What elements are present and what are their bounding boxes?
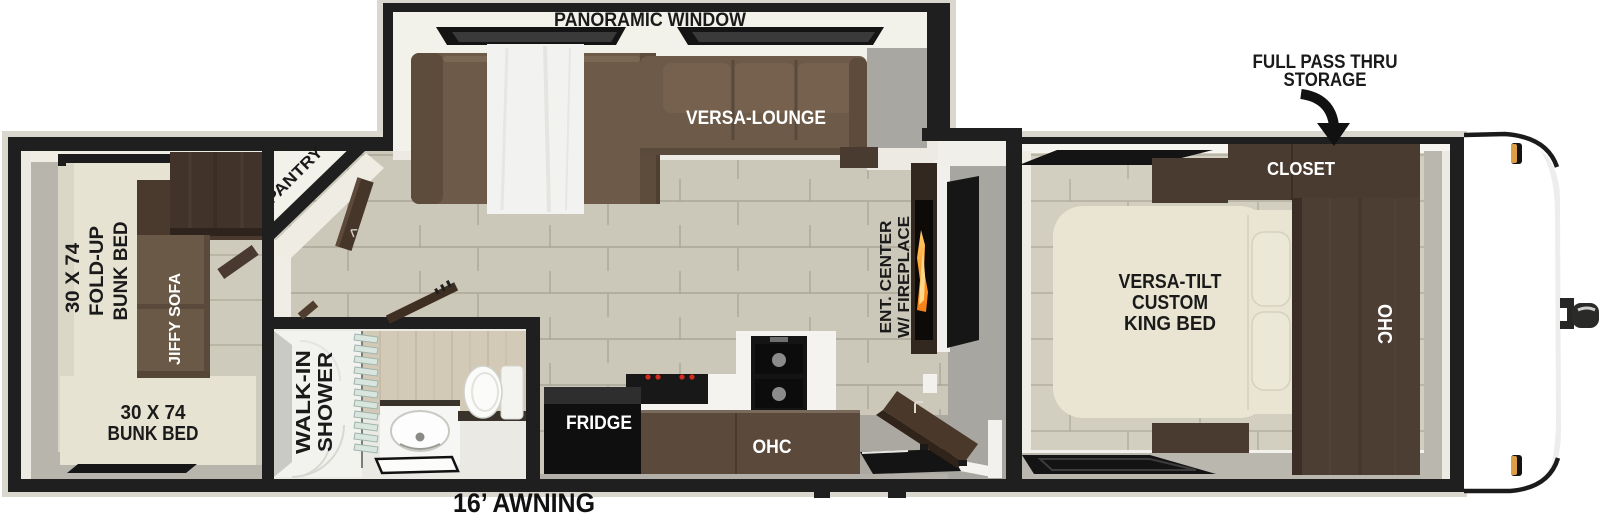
svg-text:W/ FIREPLACE: W/ FIREPLACE [896, 216, 913, 338]
svg-text:WALK-IN: WALK-IN [293, 350, 315, 454]
svg-text:ENT. CENTER: ENT. CENTER [878, 220, 895, 333]
svg-text:STORAGE: STORAGE [1284, 70, 1367, 91]
svg-text:VERSA-LOUNGE: VERSA-LOUNGE [686, 108, 826, 129]
svg-text:BUNK BED: BUNK BED [111, 222, 132, 321]
svg-text:16’ AWNING: 16’ AWNING [453, 488, 595, 515]
svg-text:OHC: OHC [1373, 304, 1395, 344]
svg-text:VERSA-TILT: VERSA-TILT [1119, 271, 1222, 293]
svg-text:30 X 74: 30 X 74 [63, 243, 84, 313]
svg-text:30 X 74: 30 X 74 [121, 402, 187, 424]
svg-text:PANORAMIC WINDOW: PANORAMIC WINDOW [554, 10, 746, 31]
svg-text:FRIDGE: FRIDGE [566, 413, 632, 434]
svg-text:FOLD-UP: FOLD-UP [87, 226, 108, 316]
svg-text:KING BED: KING BED [1124, 313, 1216, 335]
svg-text:JIFFY SOFA: JIFFY SOFA [167, 273, 184, 365]
svg-text:BUNK BED: BUNK BED [108, 423, 199, 445]
svg-text:CLOSET: CLOSET [1267, 159, 1335, 179]
svg-text:OHC: OHC [753, 437, 792, 458]
svg-text:SHOWER: SHOWER [315, 351, 337, 452]
svg-text:CUSTOM: CUSTOM [1132, 292, 1208, 314]
